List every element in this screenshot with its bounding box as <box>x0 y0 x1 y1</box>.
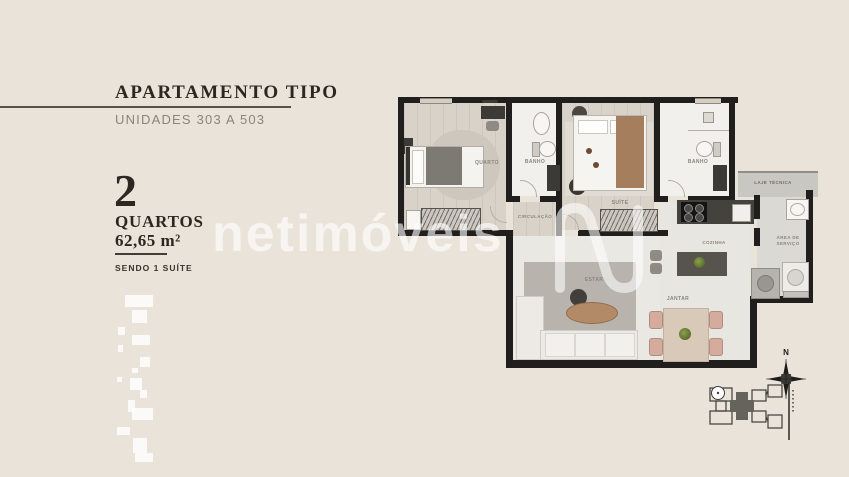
plant <box>679 328 691 340</box>
accent-pillow <box>593 162 599 168</box>
building-key-plan <box>702 380 798 444</box>
sofa-cushion <box>605 333 635 357</box>
accent-pillow <box>586 148 592 154</box>
dining-chair <box>709 338 723 356</box>
single-bed <box>405 146 484 188</box>
kitchen-sink <box>732 204 751 222</box>
watermark-brand: netimóveis <box>212 204 504 264</box>
laundry-sink <box>786 199 809 220</box>
wall <box>754 195 760 219</box>
sofa-cushion <box>575 333 605 357</box>
burner <box>695 204 704 213</box>
wall <box>654 97 660 202</box>
sofa-seat <box>540 330 638 360</box>
shower-glass <box>688 130 729 131</box>
double-bed <box>573 115 647 191</box>
wall <box>506 196 520 202</box>
street-label-marks <box>792 390 794 412</box>
wall <box>750 300 757 368</box>
shelf <box>783 291 809 298</box>
toilet-bowl <box>539 141 556 157</box>
shower-head-icon <box>703 112 714 123</box>
bathroom-sink <box>533 112 550 135</box>
washer-door <box>757 275 774 292</box>
room-label-laje-tecnica: LAJE TÉCNICA <box>740 180 806 186</box>
dryer <box>782 262 809 292</box>
burner <box>684 213 693 222</box>
window <box>695 98 721 104</box>
dryer-door <box>787 269 804 286</box>
watermark-logo-n <box>540 188 658 306</box>
bed-runner <box>616 116 644 188</box>
bathroom-vanity <box>713 165 727 191</box>
room-label-quarto: QUARTO <box>462 160 512 166</box>
sofa-cushion <box>545 333 575 357</box>
plant <box>694 257 705 268</box>
wall <box>754 228 760 246</box>
bed-blanket <box>426 147 462 185</box>
toilet-bowl <box>696 141 713 157</box>
burner <box>695 213 704 222</box>
ceiling-fan-icon <box>482 100 498 103</box>
bed-headboard <box>406 147 410 185</box>
burner <box>684 204 693 213</box>
room-label-banho1: BANHO <box>515 159 555 165</box>
dining-chair <box>709 311 723 329</box>
room-label-area-servico: ÁREA DE SERVIÇO <box>769 235 807 246</box>
room-label-jantar: JANTAR <box>658 296 698 302</box>
wall <box>729 97 735 198</box>
wall <box>506 360 757 368</box>
dining-chair <box>649 338 663 356</box>
dining-chair <box>649 311 663 329</box>
room-label-banho2: BANHO <box>678 159 718 165</box>
window <box>420 98 452 104</box>
floorplan-marketing-image: APARTAMENTO TIPO UNIDADES 303 A 503 2 QU… <box>0 0 849 477</box>
wall <box>506 230 513 368</box>
laundry-basin <box>790 203 805 216</box>
toilet-tank <box>713 142 721 157</box>
desk-chair <box>486 121 499 131</box>
washer <box>751 268 780 299</box>
wall <box>506 97 512 202</box>
room-label-cozinha: COZINHA <box>694 240 734 246</box>
stove <box>681 202 707 222</box>
bed-pillow <box>412 150 424 184</box>
compass-north-label: N <box>783 348 789 357</box>
desk <box>481 106 505 119</box>
bed-pillow <box>578 120 608 134</box>
